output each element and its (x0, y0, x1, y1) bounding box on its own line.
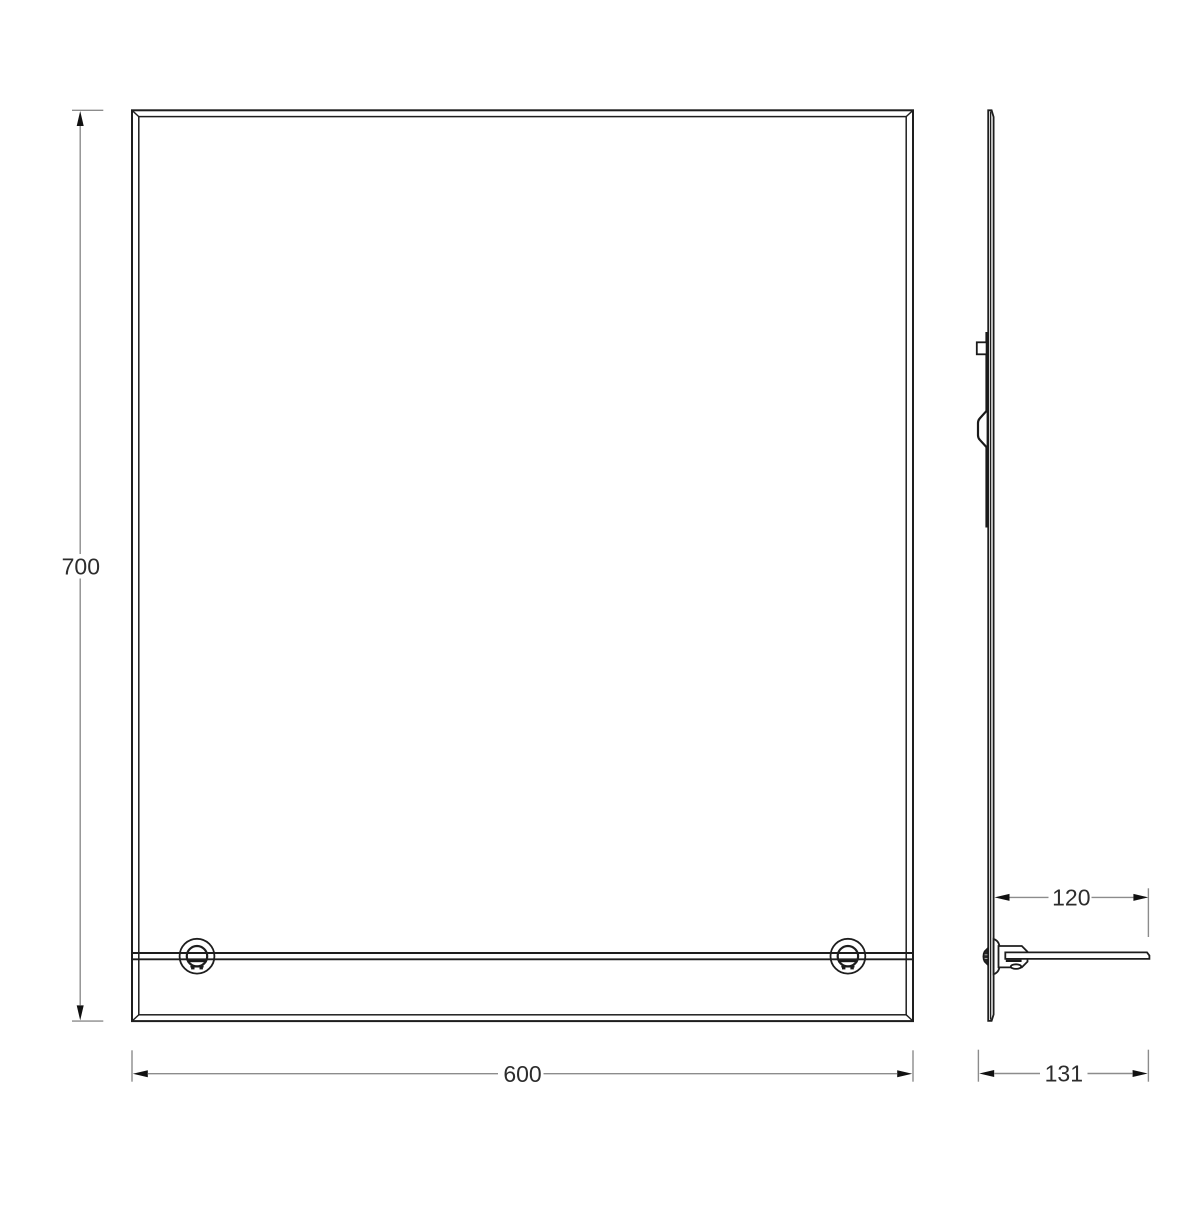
svg-text:600: 600 (503, 1061, 541, 1087)
svg-text:120: 120 (1052, 884, 1090, 910)
svg-text:131: 131 (1045, 1061, 1083, 1087)
svg-text:700: 700 (62, 553, 100, 579)
